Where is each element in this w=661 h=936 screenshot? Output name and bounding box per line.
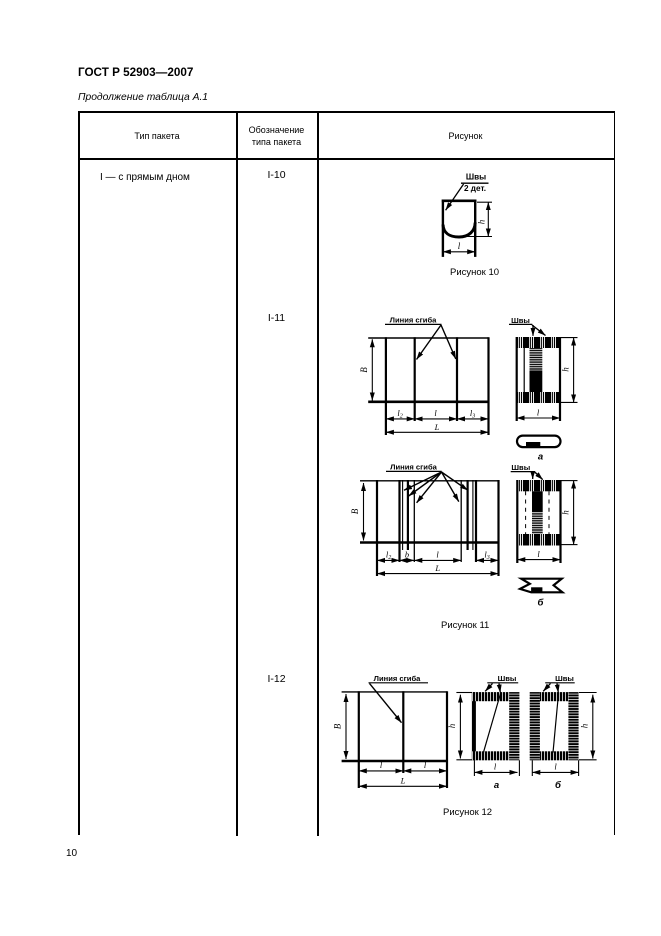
- svg-text:б: б: [538, 598, 545, 609]
- svg-text:l: l: [494, 761, 497, 771]
- svg-text:l: l: [458, 241, 461, 251]
- svg-text:l3: l3: [484, 550, 489, 562]
- svg-text:Швы: Швы: [498, 674, 517, 683]
- svg-text:Швы: Швы: [511, 316, 530, 325]
- svg-text:l: l: [537, 407, 540, 417]
- svg-text:Швы: Швы: [555, 674, 574, 683]
- svg-text:2 дет.: 2 дет.: [464, 184, 486, 193]
- svg-text:l2: l2: [397, 408, 402, 420]
- svg-text:L: L: [434, 563, 440, 573]
- svg-text:Линия сгиба: Линия сгиба: [374, 674, 422, 683]
- svg-text:h: h: [561, 367, 571, 372]
- svg-text:B: B: [333, 723, 343, 729]
- svg-text:б: б: [555, 780, 562, 791]
- svg-text:l: l: [434, 408, 437, 418]
- svg-text:h: h: [477, 219, 487, 224]
- svg-text:l: l: [436, 550, 439, 560]
- svg-text:Швы: Швы: [511, 463, 530, 472]
- svg-text:а: а: [538, 452, 543, 463]
- svg-text:l: l: [537, 549, 540, 559]
- svg-text:l3: l3: [470, 408, 475, 420]
- svg-text:B: B: [350, 508, 360, 514]
- svg-text:h: h: [580, 723, 590, 728]
- svg-text:h: h: [561, 510, 571, 515]
- svg-text:L: L: [434, 422, 440, 432]
- svg-text:l2: l2: [386, 550, 391, 562]
- svg-text:Линия сгиба: Линия сгиба: [390, 316, 438, 325]
- svg-text:L: L: [400, 776, 406, 786]
- svg-text:Швы: Швы: [466, 173, 486, 182]
- svg-text:b: b: [405, 550, 409, 560]
- svg-text:а: а: [494, 780, 499, 791]
- svg-text:l: l: [554, 761, 557, 771]
- svg-text:h: h: [447, 723, 457, 728]
- svg-text:Линия сгиба: Линия сгиба: [390, 463, 438, 472]
- svg-text:B: B: [359, 367, 369, 373]
